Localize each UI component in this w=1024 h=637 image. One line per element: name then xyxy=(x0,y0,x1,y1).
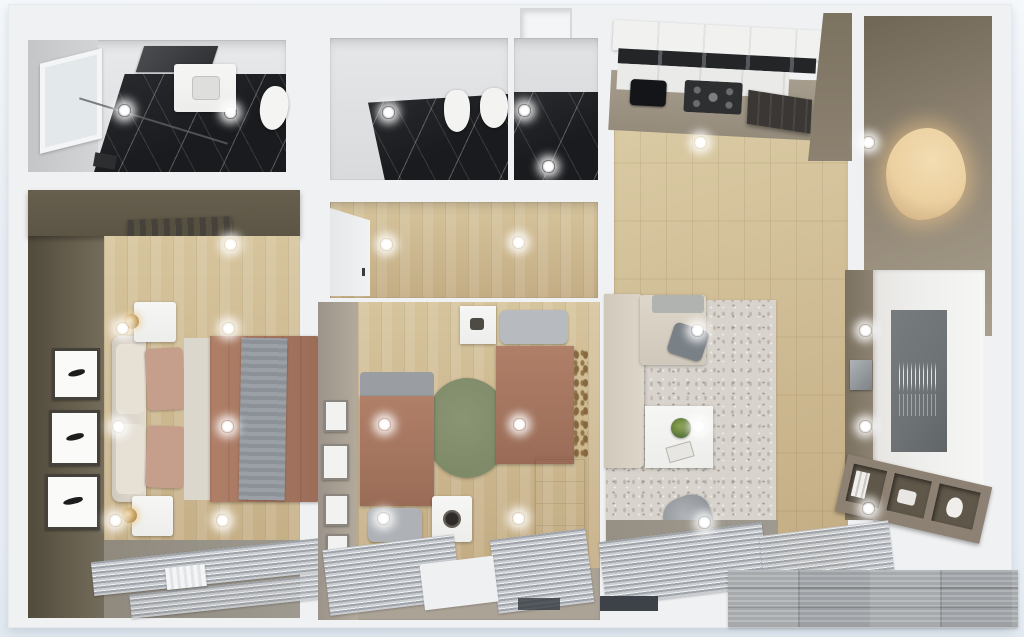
wall-artwork xyxy=(49,410,100,466)
nightstand xyxy=(134,302,176,342)
bathroom-1-vanity-sink xyxy=(174,64,236,112)
ceiling-light xyxy=(221,420,234,433)
artwork-glyph xyxy=(67,369,85,378)
ceiling-light xyxy=(224,106,237,119)
ceiling-light xyxy=(118,104,131,117)
ceiling-light xyxy=(859,324,872,337)
ceiling-light xyxy=(380,238,393,251)
shelf-decor xyxy=(896,488,917,506)
nightstand xyxy=(132,496,173,536)
wall-speaker xyxy=(850,360,872,390)
skyline-reflection xyxy=(899,394,939,416)
window-sill xyxy=(419,556,498,611)
wall-artwork xyxy=(52,348,100,400)
ceiling-light xyxy=(378,418,391,431)
ceiling-light xyxy=(224,238,237,251)
bed-pillow xyxy=(145,425,185,488)
gold-table-lamp xyxy=(122,508,137,523)
shower-head-light xyxy=(542,160,555,173)
ceiling-light xyxy=(862,136,875,149)
ceiling-light xyxy=(382,106,395,119)
single-bed-left xyxy=(360,372,434,544)
bathroom-2-shower-stall xyxy=(514,38,598,180)
striped-grey-overlay-block xyxy=(728,570,1018,627)
ceiling-light xyxy=(862,502,875,515)
table-item xyxy=(470,318,484,330)
hallway-wardrobe xyxy=(330,208,370,296)
shelf-vase xyxy=(945,496,965,519)
black-sink xyxy=(630,79,667,107)
shelf-books xyxy=(851,470,870,498)
wardrobe-handle xyxy=(362,268,365,276)
ceiling-light xyxy=(222,322,235,335)
ceiling-light xyxy=(216,514,229,527)
ceiling-light xyxy=(512,236,525,249)
hallway xyxy=(330,202,598,298)
bathroom-2 xyxy=(330,38,508,180)
window-slit xyxy=(518,598,560,610)
ceiling-light xyxy=(512,512,525,525)
backlit-organic-mirror xyxy=(886,128,966,220)
sofa-grey-cushion xyxy=(652,295,704,313)
ceiling-light xyxy=(116,322,129,335)
kids-bedroom xyxy=(318,302,600,620)
shelf-cubby xyxy=(931,483,980,529)
bathroom-2-wall-niche xyxy=(520,8,572,42)
round-door xyxy=(443,510,461,528)
artwork-glyph xyxy=(65,432,84,442)
bathroom-2-toilet xyxy=(480,88,508,128)
radiator xyxy=(165,564,207,590)
bedroom-accent-wall xyxy=(28,190,104,618)
double-bed xyxy=(112,336,322,502)
kids-small-table xyxy=(460,306,496,344)
tv-screen xyxy=(891,310,947,452)
wall-vine-decor xyxy=(572,348,588,460)
bed-pillow-grey xyxy=(500,310,568,344)
shelf-cubby xyxy=(886,473,932,519)
headboard-cushion xyxy=(116,344,144,414)
floor-plan-render xyxy=(0,0,1024,637)
window-slit xyxy=(600,596,658,611)
bed-duvet-terracotta xyxy=(360,396,434,506)
table-book xyxy=(665,441,694,464)
bed-duvet-terracotta xyxy=(496,346,574,464)
bed-head-strip xyxy=(360,372,434,396)
ceiling-light xyxy=(691,324,704,337)
ceiling-light xyxy=(692,420,705,433)
ceiling-light xyxy=(859,420,872,433)
artwork-glyph xyxy=(62,496,82,506)
bed-pillow-grey xyxy=(368,508,422,542)
bed-sheet xyxy=(184,338,212,500)
bed-pillow xyxy=(144,347,185,411)
headboard-cushion xyxy=(116,424,144,494)
corner-sofa-back xyxy=(604,294,644,468)
ceiling-light xyxy=(109,514,122,527)
ceiling-light xyxy=(112,420,125,433)
wall-artwork xyxy=(45,474,100,530)
ceiling-light xyxy=(694,136,707,149)
ceiling-light xyxy=(698,516,711,529)
bathroom-1-basin xyxy=(192,76,220,100)
living-room-kitchen xyxy=(612,8,1016,630)
master-bedroom xyxy=(28,190,300,618)
bathroom-1 xyxy=(28,40,286,172)
small-wall-frame xyxy=(324,400,348,432)
ceiling-light xyxy=(513,418,526,431)
small-wall-frame xyxy=(322,444,349,480)
potted-plant xyxy=(671,418,691,438)
skyline-artwork xyxy=(899,362,939,392)
gas-hob xyxy=(683,80,743,115)
coffee-table xyxy=(645,406,713,468)
bedroom-window-zone xyxy=(104,540,300,618)
small-wall-frame xyxy=(324,494,349,526)
single-bed-right xyxy=(496,308,574,464)
bathroom-2-bidet xyxy=(444,90,470,132)
bed-grey-throw xyxy=(239,338,288,501)
ceiling-light xyxy=(518,104,531,117)
ceiling-light xyxy=(377,512,390,525)
